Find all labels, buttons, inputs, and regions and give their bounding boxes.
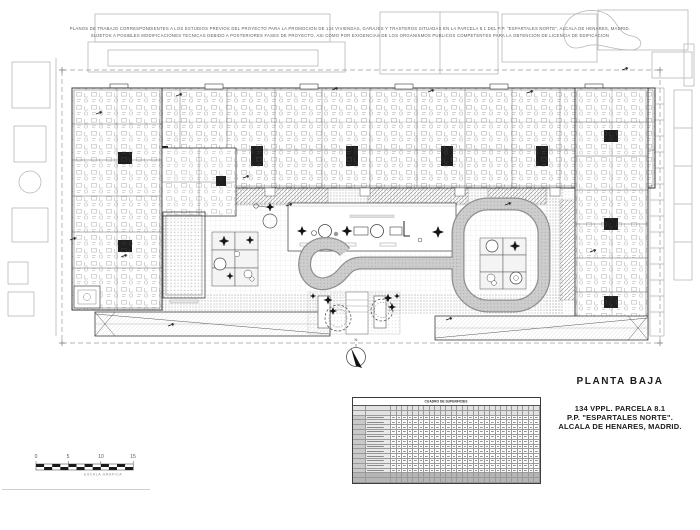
context-block (652, 52, 692, 78)
project-line-2: P.P. "ESPARTALES NORTE". (540, 413, 700, 422)
scale-tick-5: 5 (67, 454, 70, 460)
entrance-plaza (308, 292, 400, 334)
north-arrow (347, 344, 366, 368)
floor-plan-svg (0, 0, 700, 525)
context-block (12, 62, 50, 108)
drawing-title: PLANTA BAJA (540, 376, 700, 387)
play-ring (214, 258, 226, 270)
project-line-3: ALCALA DE HENARES, MADRID. (540, 422, 700, 431)
playground-left (212, 232, 258, 286)
context-roundabout (19, 171, 41, 193)
play-ring (492, 281, 497, 286)
play-ring (244, 270, 252, 278)
play-ring (234, 251, 240, 257)
table-cell (366, 478, 391, 483)
floor-plan (0, 0, 700, 525)
left-wing-protrusion (162, 148, 236, 216)
summary-table-title: CUADRO DE SUPERFICIES (353, 398, 540, 406)
scale-tick-10: 10 (98, 454, 104, 460)
play-ring (486, 240, 498, 252)
summary-table-grid (353, 406, 540, 483)
play-ring (510, 272, 522, 284)
terrace-hatch (228, 188, 328, 204)
context-block (8, 292, 34, 316)
scale-tick-15: 15 (130, 454, 136, 460)
scale-tick-0: 0 (35, 454, 38, 460)
terrace-hatch (560, 200, 575, 300)
context-block (108, 50, 318, 66)
scale-caption: ESCALA GRAFICA (84, 473, 122, 476)
drawing-sheet: { "sheet": { "disclaimer_line1": "PLANOS… (0, 0, 700, 525)
project-line-1: 134 VPPL. PARCELA 8.1 (540, 404, 700, 413)
garage-ramp-right (435, 316, 648, 340)
title-block: PLANTA BAJA 134 VPPL. PARCELA 8.1 P.P. "… (540, 376, 700, 431)
utility-kiosk (74, 286, 100, 308)
project-description: 134 VPPL. PARCELA 8.1 P.P. "ESPARTALES N… (540, 404, 700, 431)
parking-strip-right (650, 88, 692, 336)
context-block (8, 262, 28, 284)
context-block (12, 208, 48, 242)
sheet-divider-line (2, 489, 150, 490)
terrace-hatch (368, 188, 468, 204)
context-block (88, 42, 345, 72)
entrance-walk (346, 292, 368, 334)
table-cell (353, 478, 366, 483)
playground-right (480, 238, 526, 289)
pool-label-tag (170, 300, 198, 303)
disclaimer-line-2: SUJETOS A POSIBLES MODIFICACIONES TECNIC… (32, 33, 668, 40)
context-block (14, 126, 46, 162)
disclaimer: PLANOS DE TRABAJO CORRESPONDIENTES A LOS… (32, 26, 668, 39)
context-block (380, 12, 498, 74)
scale-bar (36, 461, 133, 470)
plaza-label-tag (350, 215, 394, 218)
table-cell (534, 478, 540, 483)
garage-ramp-left (95, 312, 330, 336)
play-ring (250, 277, 254, 281)
summary-table: CUADRO DE SUPERFICIES (352, 397, 541, 484)
north-label: N (355, 337, 358, 342)
swimming-pool (163, 212, 205, 303)
